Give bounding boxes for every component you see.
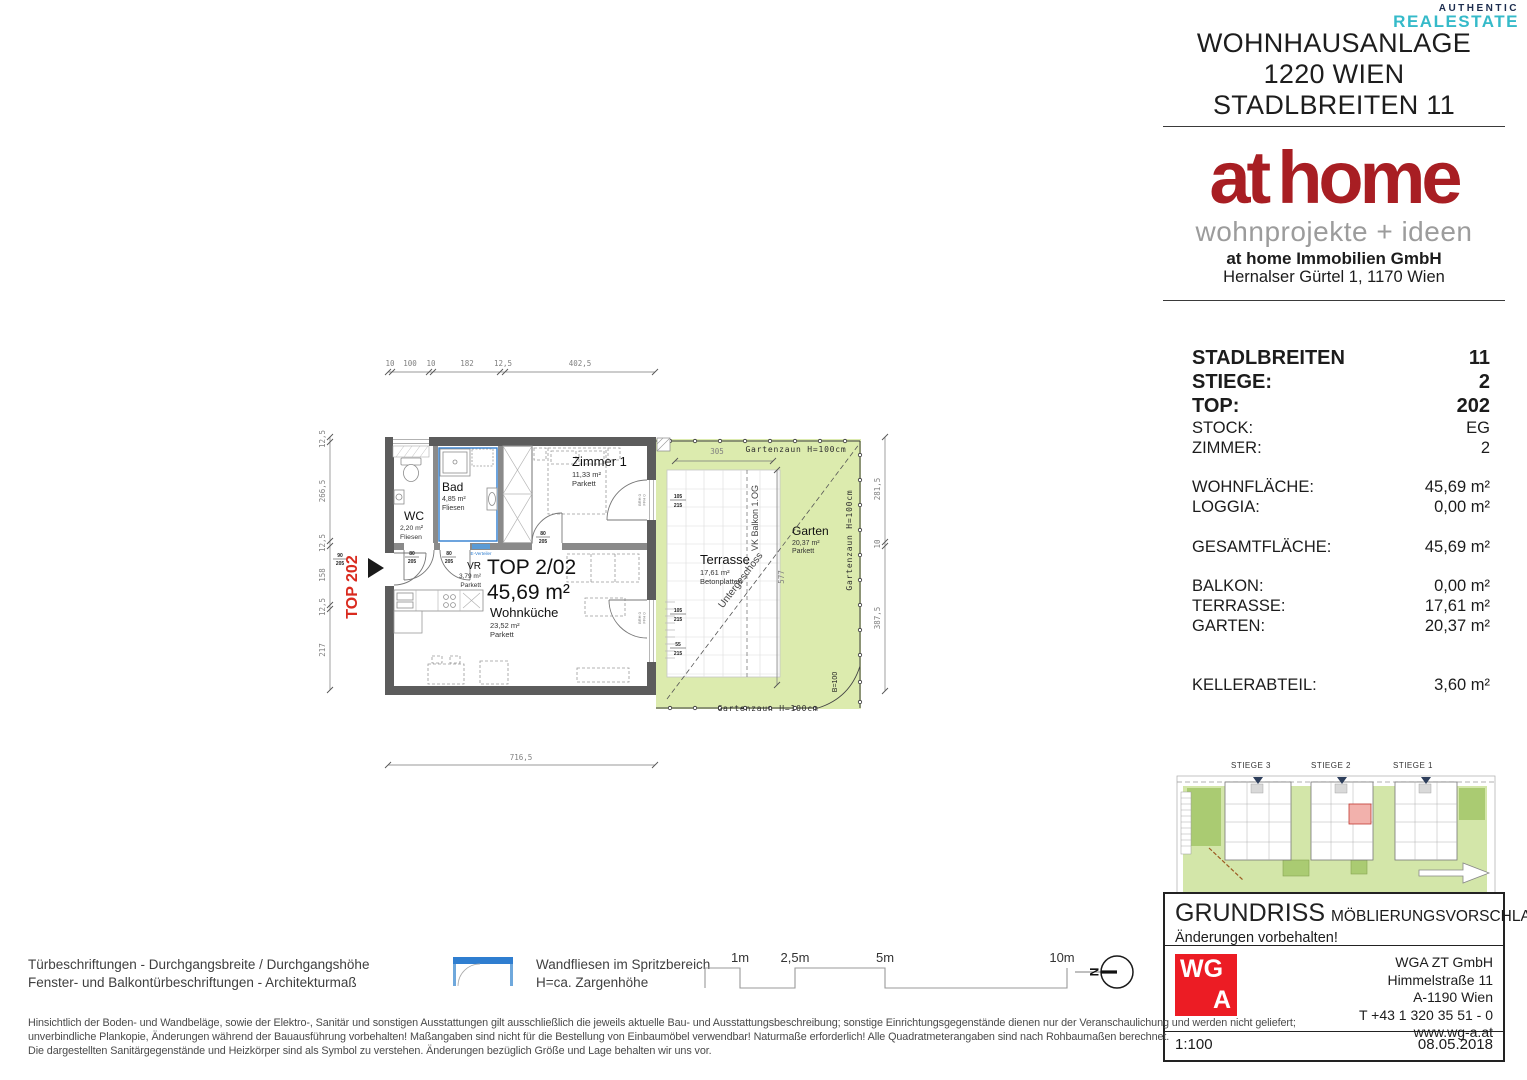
dim-top-2: 100 [403, 359, 417, 368]
drawing-subtitle: MÖBLIERUNGSVORSCHLAG [1331, 908, 1527, 925]
project-title: WOHNHAUSANLAGE 1220 WIEN STADLBREITEN 11 [1163, 28, 1505, 121]
ffh-label: FFH 0 [642, 494, 647, 506]
scale-2-5m: 2,5m [781, 950, 810, 965]
fence-label-right: Gartenzaun H=100cm [845, 489, 854, 590]
table-row: STOCK:EG [1192, 418, 1490, 438]
project-title-line3: STADLBREITEN 11 [1163, 90, 1505, 121]
athome-logo-at: at [1209, 136, 1267, 219]
brand-address: Hernalser Gürtel 1, 1170 Wien [1163, 268, 1505, 287]
room-wc: WC [404, 509, 424, 523]
table-row: TOP:202 [1192, 394, 1490, 418]
washer [472, 449, 493, 466]
nightstand [534, 448, 546, 460]
dim-top-6: 402,5 [569, 359, 592, 368]
wga-logo-wg: WG [1180, 955, 1223, 984]
room-wohnkueche-floor: Parkett [490, 630, 515, 639]
window2-height: 215 [674, 617, 683, 623]
floor-plan: 10 100 10 182 12,5 402,5 12,5 266,5 12,5… [300, 350, 920, 820]
room-wohnkueche-area: 23,52 m² [490, 621, 520, 630]
room-garten-area: 20,37 m² [792, 540, 820, 547]
info-label: STIEGE: [1192, 370, 1272, 394]
divider [1163, 126, 1505, 127]
info-value: 2 [1479, 370, 1490, 394]
zimmer-door-height: 205 [539, 539, 548, 545]
title-block-row1: GRUNDRISSMÖBLIERUNGSVORSCHLAG Änderungen… [1165, 894, 1503, 946]
room-wc-area: 2,20 m² [400, 525, 424, 532]
site-label-stiege1: STIEGE 1 [1393, 761, 1433, 770]
bad-door-height: 205 [445, 559, 454, 565]
window3-height: 215 [674, 651, 683, 657]
window-width: 105 [674, 494, 683, 500]
architect-street: Himmelstraße 11 [1359, 972, 1493, 990]
info-label: BALKON: [1192, 576, 1264, 596]
table [480, 661, 508, 684]
athome-logo-home: home [1277, 136, 1458, 219]
info-value: 20,37 m² [1425, 616, 1490, 636]
project-title-line2: 1220 WIEN [1163, 59, 1505, 90]
info-label: WOHNFLÄCHE: [1192, 477, 1314, 497]
dim-top-3: 10 [426, 359, 436, 368]
table-row: GARTEN:20,37 m² [1192, 616, 1490, 636]
toilet [401, 458, 421, 465]
dim-top-4: 182 [460, 359, 474, 368]
table-row: GESAMTFLÄCHE:45,69 m² [1192, 537, 1490, 557]
disclaimer-line2: unverbindliche Plankopie, Änderungen wäh… [28, 1030, 1296, 1044]
gate-width-label: B=100 [832, 672, 839, 693]
room-zimmer1: Zimmer 1 [572, 454, 627, 469]
info-label: STADLBREITEN [1192, 346, 1345, 370]
site-label-stiege2: STIEGE 2 [1311, 761, 1351, 770]
room-zimmer1-area: 11,33 m² [572, 470, 602, 479]
table-row: KELLERABTEIL:3,60 m² [1192, 675, 1490, 695]
info-label: TOP: [1192, 394, 1239, 418]
drawing-date: 08.05.2018 [1418, 1032, 1493, 1057]
disclaimer-line1: Hinsichtlich der Boden- und Wandbeläge, … [28, 1016, 1296, 1030]
info-label: KELLERABTEIL: [1192, 675, 1317, 695]
athome-logo: athome [1163, 140, 1505, 216]
info-label: ZIMMER: [1192, 438, 1262, 458]
floorplan-sheet: { "watermark": {"line1": "AUTHENTIC", "l… [0, 0, 1527, 1080]
e-verteiler-box [472, 544, 490, 549]
toilet-bowl [404, 465, 419, 482]
dining-table [428, 664, 464, 684]
info-value: 45,69 m² [1425, 477, 1490, 497]
vk-balkon-label: VK Balkon 1.OG [750, 485, 760, 551]
entry-arrow [368, 558, 384, 578]
drawing-title: GRUNDRISS [1175, 899, 1325, 927]
scale-5m: 5m [876, 950, 894, 965]
legend-door-line2: Fenster- und Balkontürbeschriftungen - A… [28, 974, 369, 992]
wc-door-height: 205 [408, 559, 417, 565]
kitchen-cabinet [394, 611, 422, 633]
zimmer-door-width: 80 [540, 531, 546, 537]
info-label: TERRASSE: [1192, 596, 1286, 616]
dim-right-2: 10 [873, 539, 882, 549]
room-vr-floor: Parkett [460, 582, 481, 589]
info-value: 17,61 m² [1425, 596, 1490, 616]
dim-right-3: 387,5 [873, 607, 882, 630]
dim-left-6: 217 [318, 643, 327, 657]
room-vr-area: 3,79 m² [459, 573, 482, 580]
info-label: GESAMTFLÄCHE: [1192, 537, 1331, 557]
table-row: BALKON:0,00 m² [1192, 576, 1490, 596]
dim-top-5: 12,5 [494, 359, 512, 368]
entry-door-swing [394, 553, 426, 585]
window2-width: 105 [674, 608, 683, 614]
architect-address: WGA ZT GmbH Himmelstraße 11 A-1190 Wien … [1359, 954, 1493, 1023]
architect-firm: WGA ZT GmbH [1359, 954, 1493, 972]
info-value: 11 [1469, 346, 1490, 370]
project-title-line1: WOHNHAUSANLAGE [1163, 28, 1505, 59]
dim-top-1: 10 [385, 359, 395, 368]
e-verteiler-label: E-Verteiler [470, 551, 492, 556]
bad-door-width: 80 [446, 551, 452, 557]
table-row: STIEGE:2 [1192, 370, 1490, 394]
wc-door-width: 80 [409, 551, 415, 557]
room-garten: Garten [792, 524, 829, 538]
north-letter: N [1087, 968, 1101, 977]
room-vr: VR [467, 561, 481, 572]
dim-left-3: 12,5 [318, 534, 327, 552]
table-row: TERRASSE:17,61 m² [1192, 596, 1490, 616]
entry-door-width: 90 [337, 553, 343, 559]
table-row: WOHNFLÄCHE:45,69 m² [1192, 477, 1490, 497]
sofa [567, 554, 639, 582]
north-arrow-icon: N [1073, 950, 1145, 996]
sideboard [577, 668, 629, 682]
room-bad-area: 4,85 m² [442, 496, 466, 503]
room-terrasse: Terrasse [700, 552, 750, 567]
info-value: 0,00 m² [1434, 497, 1490, 517]
window3-width: 55 [675, 642, 681, 648]
info-value: 2 [1481, 438, 1490, 458]
info-label: GARTEN: [1192, 616, 1265, 636]
room-zimmer1-floor: Parkett [572, 479, 597, 488]
info-value: 3,60 m² [1434, 675, 1490, 695]
divider [1163, 300, 1505, 301]
legend-doors: Türbeschriftungen - Durchgangsbreite / D… [28, 956, 369, 991]
watermark-realestate: REALESTATE [1393, 15, 1519, 28]
brand-company: at home Immobilien GmbH [1163, 249, 1505, 269]
info-label: STOCK: [1192, 418, 1253, 438]
window-height: 215 [674, 503, 683, 509]
coffee-table [585, 598, 625, 616]
info-value: 45,69 m² [1425, 537, 1490, 557]
authentic-realestate-watermark: AUTHENTIC REALESTATE [1393, 2, 1519, 28]
scale-10m: 10m [1049, 950, 1074, 965]
scale-1m: 1m [731, 950, 749, 965]
dim-garden-width: 305 [710, 447, 724, 456]
disclaimer-line3: Die dargestellten Sanitärgegenstände und… [28, 1044, 1296, 1058]
unit-area: 45,69 m² [487, 581, 570, 604]
tile-legend-icon [452, 956, 514, 988]
room-bad-floor: Fliesen [442, 505, 465, 512]
garden-area [656, 439, 861, 709]
dim-right-1: 281,5 [873, 478, 882, 501]
ffh-label: FFH 0 [642, 612, 647, 624]
scale-bar: 1m 2,5m 5m 10m [700, 950, 1080, 996]
wga-logo-a: A [1213, 986, 1231, 1015]
dim-left-2: 266,5 [318, 480, 327, 503]
architect-phone: T +43 1 320 35 51 - 0 [1359, 1007, 1493, 1025]
room-wc-floor: Fliesen [400, 534, 422, 541]
entry-unit-label: TOP 202 [344, 555, 361, 619]
legend-tile-line2: H=ca. Zargenhöhe [536, 974, 710, 992]
fence-label-bottom: Gartenzaun H=100cm [717, 704, 818, 713]
drawing-note: Änderungen vorbehalten! [1175, 930, 1493, 946]
table-row: LOGGIA:0,00 m² [1192, 497, 1490, 517]
unit-info-table: STADLBREITEN11 STIEGE:2 TOP:202 STOCK:EG… [1192, 346, 1490, 695]
legend-tile-line1: Wandfliesen im Spritzbereich [536, 956, 710, 974]
wga-logo: WG A [1175, 954, 1237, 1016]
dim-left-1: 12,5 [318, 430, 327, 448]
dim-left-5: 12,5 [318, 598, 327, 616]
info-value: 202 [1457, 394, 1490, 418]
site-plan-labels: STIEGE 3 STIEGE 2 STIEGE 1 [1231, 761, 1433, 770]
unit-number: TOP 2/02 [487, 556, 576, 579]
room-terrasse-area: 17,61 m² [700, 568, 730, 577]
disclaimer-text: Hinsichtlich der Boden- und Wandbeläge, … [28, 1016, 1296, 1059]
fence-label-top: Gartenzaun H=100cm [745, 445, 846, 454]
legend-tiles: Wandfliesen im Spritzbereich H=ca. Zarge… [536, 956, 710, 991]
site-highlighted-unit [1349, 804, 1371, 824]
site-label-stiege3: STIEGE 3 [1231, 761, 1271, 770]
kitchen-sink [397, 593, 413, 600]
room-bad: Bad [442, 480, 463, 494]
dim-garden-height: 577 [777, 570, 786, 584]
architect-city: A-1190 Wien [1359, 989, 1493, 1007]
dim-bottom: 716,5 [510, 753, 533, 762]
table-row: STADLBREITEN11 [1192, 346, 1490, 370]
room-garten-floor: Parkett [792, 548, 814, 555]
info-value: EG [1466, 418, 1490, 438]
table-row: ZIMMER:2 [1192, 438, 1490, 458]
room-wohnkueche: Wohnküche [490, 605, 558, 620]
athome-tagline: wohnprojekte + ideen [1163, 216, 1505, 248]
info-value: 0,00 m² [1434, 576, 1490, 596]
legend-door-line1: Türbeschriftungen - Durchgangsbreite / D… [28, 956, 369, 974]
dim-left-4: 158 [318, 568, 327, 582]
info-label: LOGGIA: [1192, 497, 1260, 517]
site-plan-drawing [1177, 776, 1495, 908]
hob-ring [444, 595, 449, 600]
